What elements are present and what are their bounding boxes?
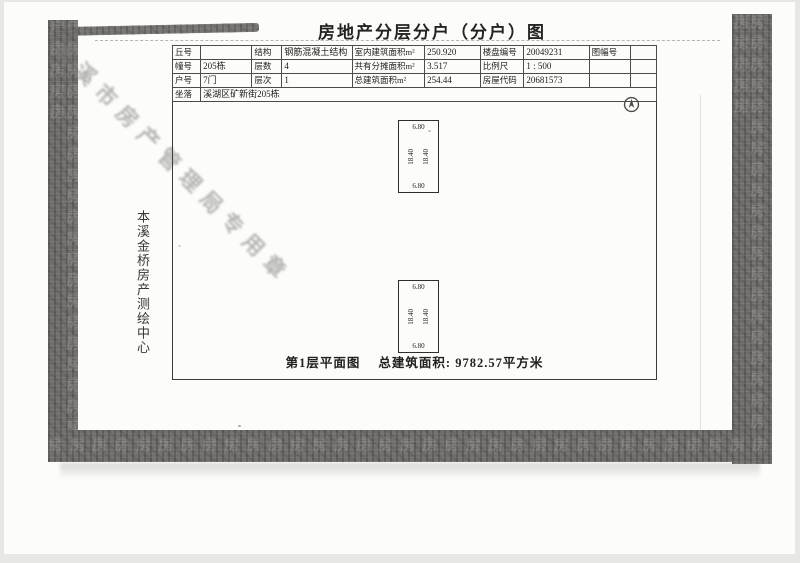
band-pattern-texture: 房房房房房房房房房房房房房房房房房房房房房房房房房房 xyxy=(48,20,78,462)
cover-band-right: 房房房房房房房房房房房房房房房房房房房房房房房房房房 xyxy=(732,14,772,464)
page-title: 房地产分层分户（分户）图 xyxy=(62,18,800,43)
field-value: 20049231 xyxy=(524,46,589,60)
field-value: 1 xyxy=(282,74,352,88)
field-label xyxy=(589,60,630,74)
field-value: 4 xyxy=(282,60,352,74)
unit2-top-dimension: 6.80 xyxy=(412,283,424,291)
field-value: 250.920 xyxy=(425,46,481,60)
field-label: 丘号 xyxy=(173,46,201,60)
paper-fold-shadow xyxy=(700,95,701,435)
field-label: 楼盘编号 xyxy=(480,46,524,60)
field-label: 层次 xyxy=(252,74,282,88)
unit2-left-dimension: 18.40 xyxy=(407,309,415,325)
unit1-right-dimension: 18.40 xyxy=(422,149,430,165)
scan-specks xyxy=(238,425,241,427)
cover-band-left: 房房房房房房房房房房房房房房房房房房房房房房房房房房 xyxy=(48,20,78,462)
field-label: 图幅号 xyxy=(589,46,630,60)
floor-plan-frame: 丘号 结构 钢筋混凝土结构 室内建筑面积m² 250.920 楼盘编号 2004… xyxy=(172,45,657,380)
unit1-bottom-dimension: 6.80 xyxy=(412,182,424,190)
unit1-top-dimension: 6.80 xyxy=(412,123,424,131)
plan-unit-2: 6.80 18.40 18.40 6.80 xyxy=(398,280,439,353)
cover-band-bottom: 房房房房房房房房房房房房房房房房房房房房房房房房房房房房房房房房房房房房房房房房 xyxy=(48,430,772,462)
scan-smudge xyxy=(60,463,760,479)
field-value: 20681573 xyxy=(524,74,589,88)
field-label: 比例尺 xyxy=(480,60,524,74)
surveying-center-vertical-text: 本溪金桥房产测绘中心 xyxy=(133,210,152,360)
field-value xyxy=(201,46,252,60)
field-value: 1 : 500 xyxy=(524,60,589,74)
plan-caption: 第1层平面图总建筑面积: 9782.57平方米 xyxy=(173,352,656,371)
field-label: 坐落 xyxy=(173,88,201,102)
table-row: 户号 7门 层次 1 总建筑面积m² 254.44 房屋代码 20681573 xyxy=(173,74,657,88)
total-area-label: 总建筑面积: xyxy=(378,356,451,370)
field-label: 室内建筑面积m² xyxy=(352,46,425,60)
table-row: 丘号 结构 钢筋混凝土结构 室内建筑面积m² 250.920 楼盘编号 2004… xyxy=(173,46,657,60)
field-label: 总建筑面积m² xyxy=(352,74,425,88)
plan-unit-1: 6.80 18.40 18.40 6.80 xyxy=(398,120,439,193)
property-info-table: 丘号 结构 钢筋混凝土结构 室内建筑面积m² 250.920 楼盘编号 2004… xyxy=(172,45,657,102)
band-pattern-texture: 房房房房房房房房房房房房房房房房房房房房房房房房房房 xyxy=(732,14,764,464)
table-row-address: 坐落 溪湖区矿新街205栋 xyxy=(173,88,657,102)
unit1-left-dimension: 18.40 xyxy=(407,149,415,165)
table-row: 幢号 205栋 层数 4 共有分摊面积m² 3.517 比例尺 1 : 500 xyxy=(173,60,657,74)
field-label: 层数 xyxy=(252,60,282,74)
field-label: 房屋代码 xyxy=(480,74,524,88)
scanned-document: 房房房房房房房房房房房房房房房房房房房房房房房房房房 房房房房房房房房房房房房房… xyxy=(0,0,800,563)
field-value: 钢筋混凝土结构 xyxy=(282,46,352,60)
field-value xyxy=(630,60,656,74)
field-value: 254.44 xyxy=(425,74,481,88)
field-label: 幢号 xyxy=(173,60,201,74)
field-value xyxy=(630,74,656,88)
field-value: 3.517 xyxy=(425,60,481,74)
address-value: 溪湖区矿新街205栋 xyxy=(201,88,657,102)
field-label: 结构 xyxy=(252,46,282,60)
compass-north-icon xyxy=(623,96,640,113)
field-label xyxy=(589,74,630,88)
field-label: 共有分摊面积m² xyxy=(352,60,425,74)
band-pattern-texture: 房房房房房房房房房房房房房房房房房房房房房房房房房房房房房房房房房房房房房房房房 xyxy=(48,438,772,454)
field-value: 205栋 xyxy=(201,60,252,74)
field-value: 7门 xyxy=(201,74,252,88)
unit2-bottom-dimension: 6.80 xyxy=(412,342,424,350)
field-label: 户号 xyxy=(173,74,201,88)
field-value xyxy=(630,46,656,60)
unit2-right-dimension: 18.40 xyxy=(422,309,430,325)
plan-name: 第1层平面图 xyxy=(286,356,361,370)
total-area-value: 9782.57平方米 xyxy=(455,356,543,370)
